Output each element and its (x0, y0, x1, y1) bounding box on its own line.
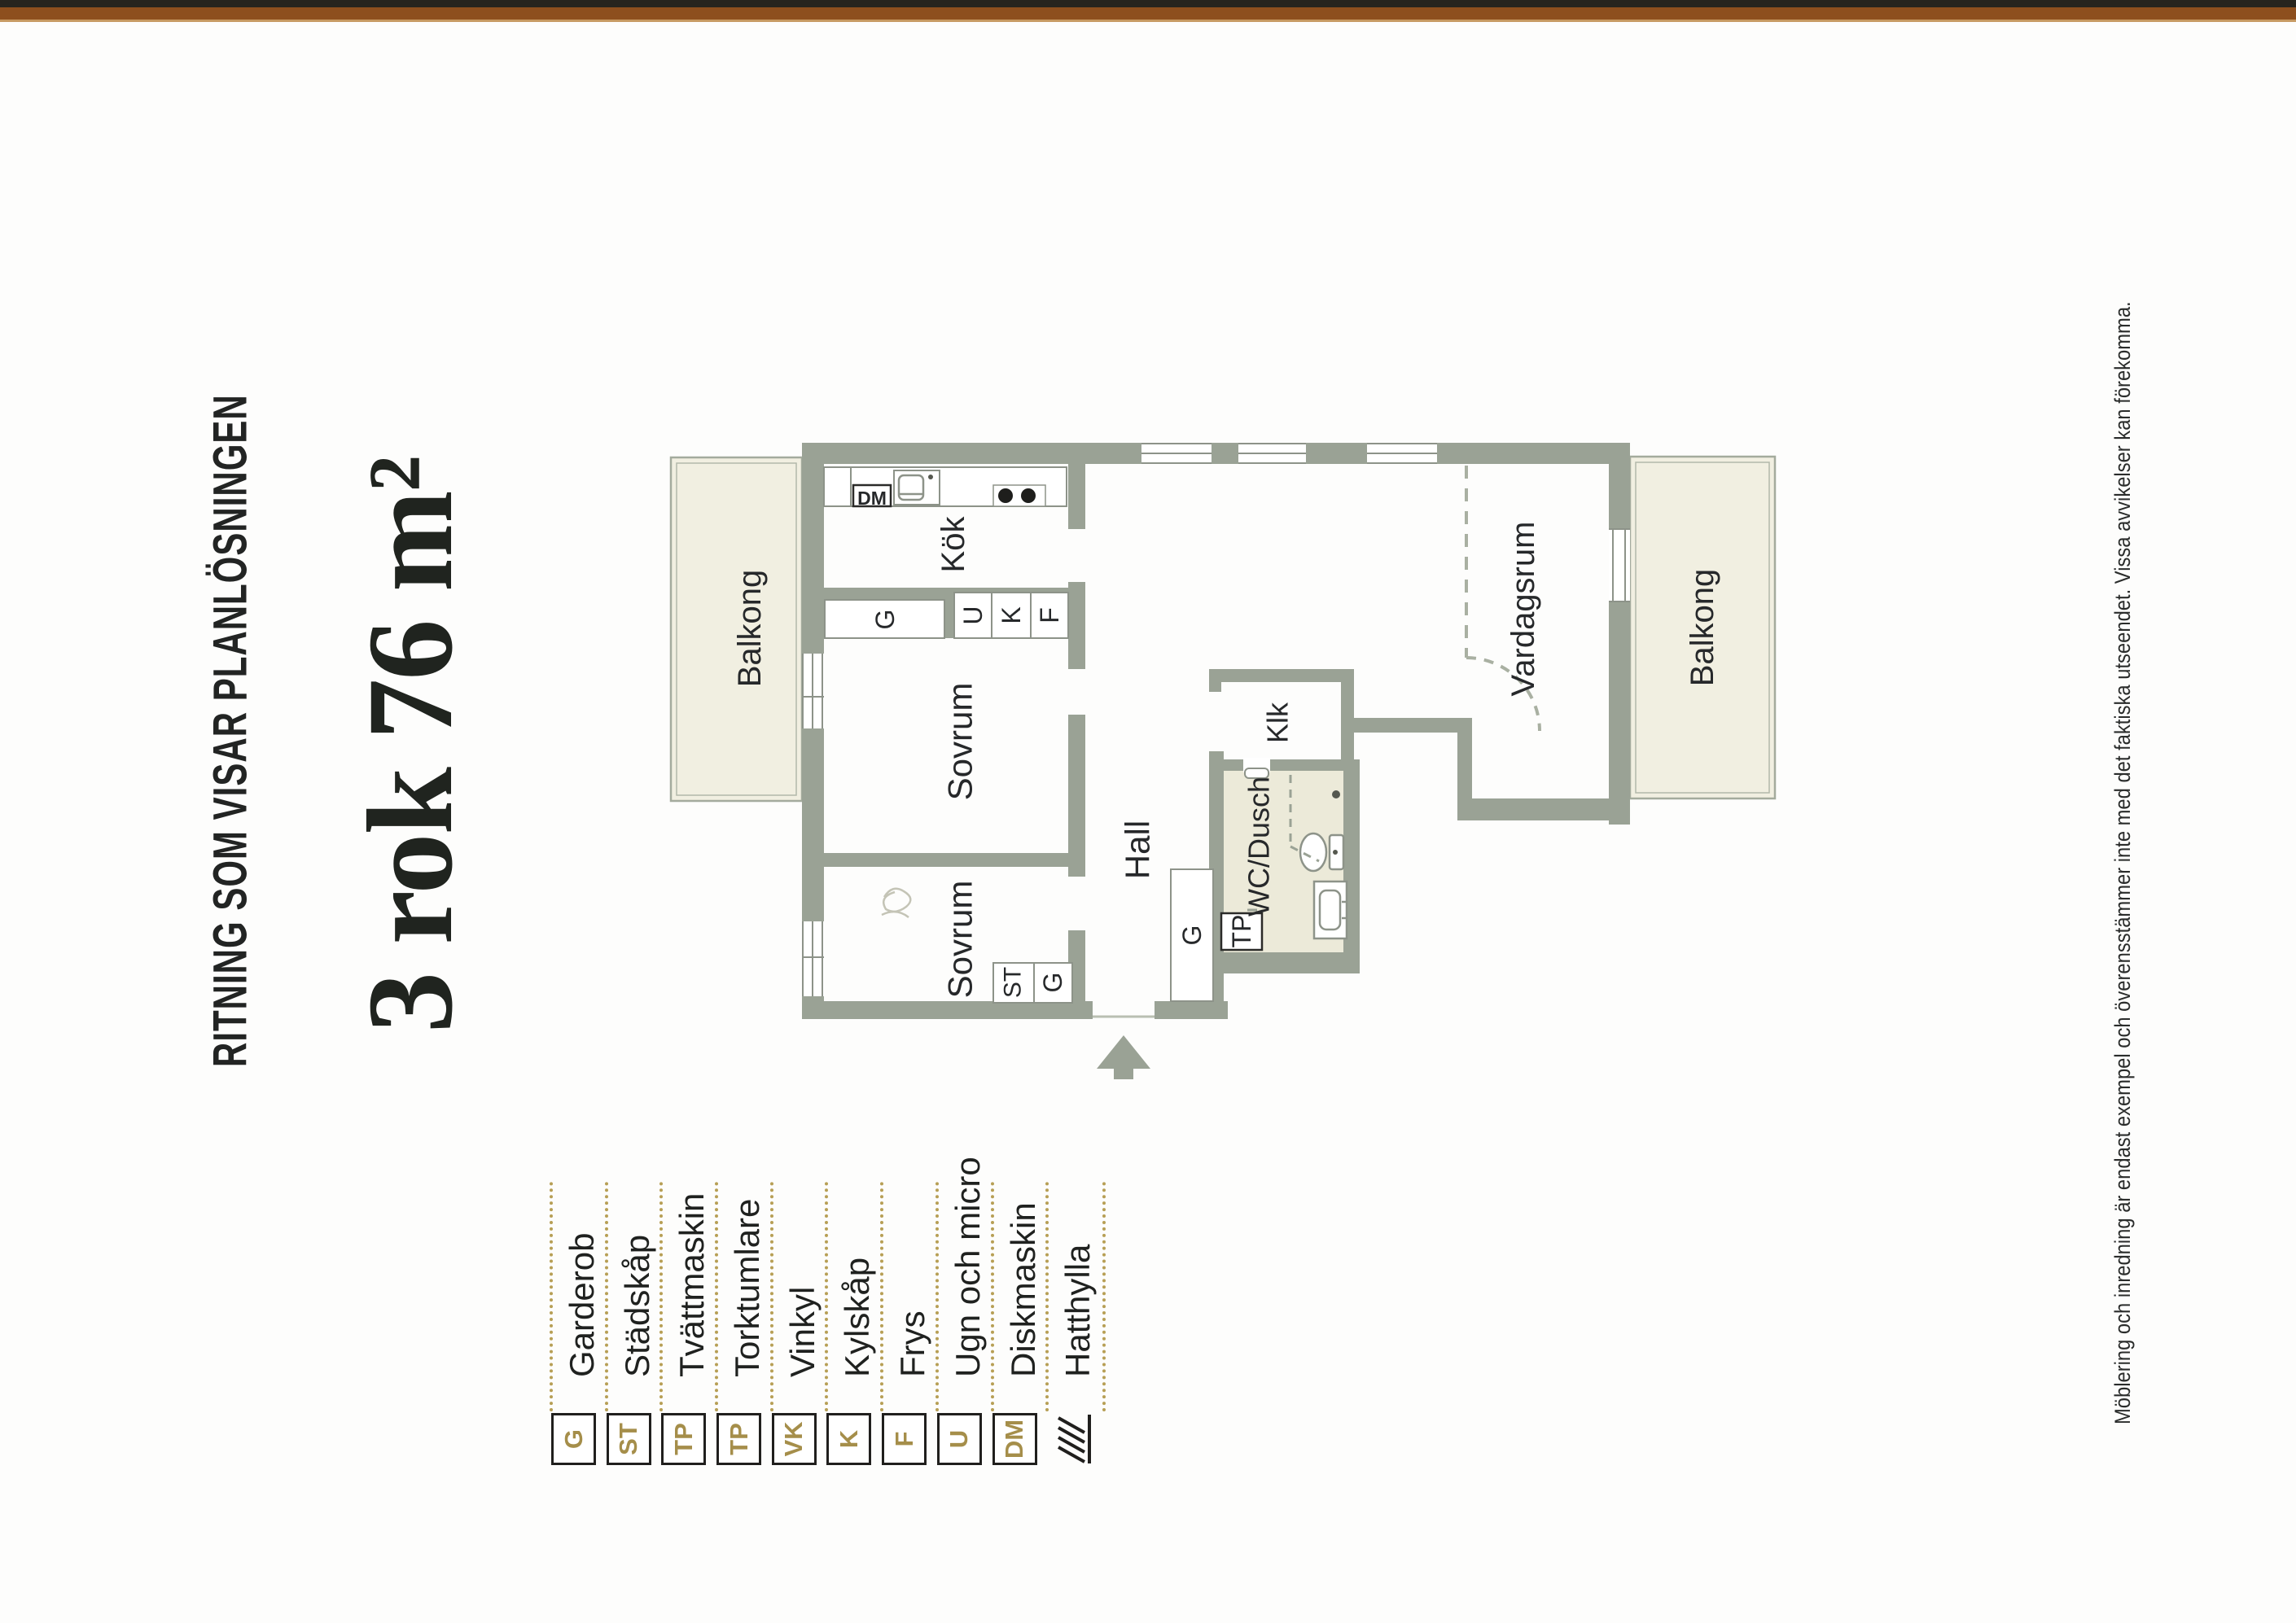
fixture-label-fridge: K (997, 606, 1026, 623)
legend-leader-line (1102, 1182, 1106, 1411)
legend-leader-line (550, 1182, 553, 1411)
stove-burners-icon (993, 485, 1045, 506)
hat-shelf-icon (1047, 1413, 1094, 1475)
legend-leader-line (659, 1182, 663, 1411)
toilet-icon (1300, 833, 1343, 871)
legend-code-box: DM (992, 1413, 1037, 1465)
fixture-label-laundry: TP (1227, 915, 1256, 948)
room-label-hall: Hall (1119, 820, 1157, 879)
disclaimer-text: Möblering och inredning är endast exempe… (2110, 207, 2136, 1424)
room-label-closet-room: Klk (1261, 702, 1295, 743)
legend-leader-line (935, 1182, 939, 1411)
legend-row: VK Vinkyl (772, 1182, 827, 1465)
room-label-bedroom-1: Sovrum (941, 683, 979, 801)
bathroom-sink-icon (1314, 881, 1347, 938)
legend-row: F Frys (882, 1182, 937, 1465)
legend-code-box: ST (607, 1413, 651, 1465)
legend-code-box: G (551, 1413, 596, 1465)
room-label-balcony-right: Balkong (1685, 569, 1720, 687)
fixture-label-freezer: F (1035, 607, 1064, 623)
legend-leader-line (605, 1182, 608, 1411)
legend: G Garderob ST Städskåp TP Tvättmaskin TP… (551, 1182, 1106, 1465)
legend-row-hatthylla: Hatthylla (1047, 1182, 1102, 1465)
room-label-bedroom-2: Sovrum (941, 881, 979, 999)
entry-arrow-icon (1097, 1035, 1150, 1079)
apartment-size-headline: 3 rok 76 m² (345, 457, 475, 1033)
balcony-door-icon (1609, 528, 1630, 602)
legend-code-box: F (882, 1413, 927, 1465)
page-title: RITNING SOM VISAR PLANLÖSNINGEN (204, 394, 257, 1067)
closet-boxes (825, 593, 1213, 1003)
legend-label: Hatthylla (1058, 1245, 1098, 1377)
fixture-label-oven: U (958, 606, 988, 624)
room-label-balcony-left: Balkong (732, 570, 768, 688)
fixture-label-cleaning: ST (1000, 967, 1027, 998)
room-label-kitchen: Kök (935, 516, 971, 573)
fixture-label-wardrobe-2: G (1038, 973, 1067, 993)
room-label-bathroom: WC/Dusch (1242, 777, 1276, 916)
legend-row: TP Tvättmaskin (661, 1182, 716, 1465)
legend-label: Vinkyl (783, 1287, 822, 1377)
legend-label: Diskmaskin (1004, 1202, 1043, 1377)
fixture-label-wardrobe-3: G (1177, 925, 1207, 946)
fixture-label-wardrobe: G (870, 610, 900, 630)
legend-label: Torktumlare (728, 1199, 767, 1377)
legend-row: U Ugn och micro (937, 1182, 992, 1465)
legend-code-box: U (937, 1413, 982, 1465)
legend-row: K Kylskåp (826, 1182, 882, 1465)
legend-label: Kylskåp (838, 1258, 877, 1377)
kitchen-counter: DM (824, 467, 1067, 509)
legend-code-box: VK (772, 1413, 817, 1465)
legend-leader-line (825, 1182, 828, 1411)
legend-code-box: TP (716, 1413, 761, 1465)
legend-label: Garderob (563, 1233, 602, 1377)
legend-label: Tvättmaskin (673, 1193, 712, 1377)
floor-plan: DM (659, 431, 1799, 1107)
room-label-living-room: Vardagsrum (1505, 522, 1541, 697)
window-icons-top (1141, 443, 1437, 464)
legend-leader-line (991, 1182, 994, 1411)
legend-row: ST Städskåp (607, 1182, 662, 1465)
legend-row: TP Torktumlare (716, 1182, 772, 1465)
scribble-mark (882, 889, 910, 917)
legend-code-box: TP (661, 1413, 706, 1465)
dishwasher-label: DM (857, 488, 887, 509)
legend-leader-line (770, 1182, 773, 1411)
legend-code-box: K (826, 1413, 871, 1465)
legend-row: G Garderob (551, 1182, 607, 1465)
legend-label: Ugn och micro (949, 1157, 988, 1377)
legend-label: Städskåp (618, 1235, 657, 1377)
legend-leader-line (1045, 1182, 1049, 1411)
scanned-page: RITNING SOM VISAR PLANLÖSNINGEN 3 rok 76… (0, 0, 2296, 1623)
legend-leader-line (880, 1182, 883, 1411)
legend-label: Frys (893, 1310, 932, 1377)
kitchen-sink-icon (894, 470, 940, 505)
legend-row: DM Diskmaskin (992, 1182, 1048, 1465)
legend-leader-line (715, 1182, 718, 1411)
